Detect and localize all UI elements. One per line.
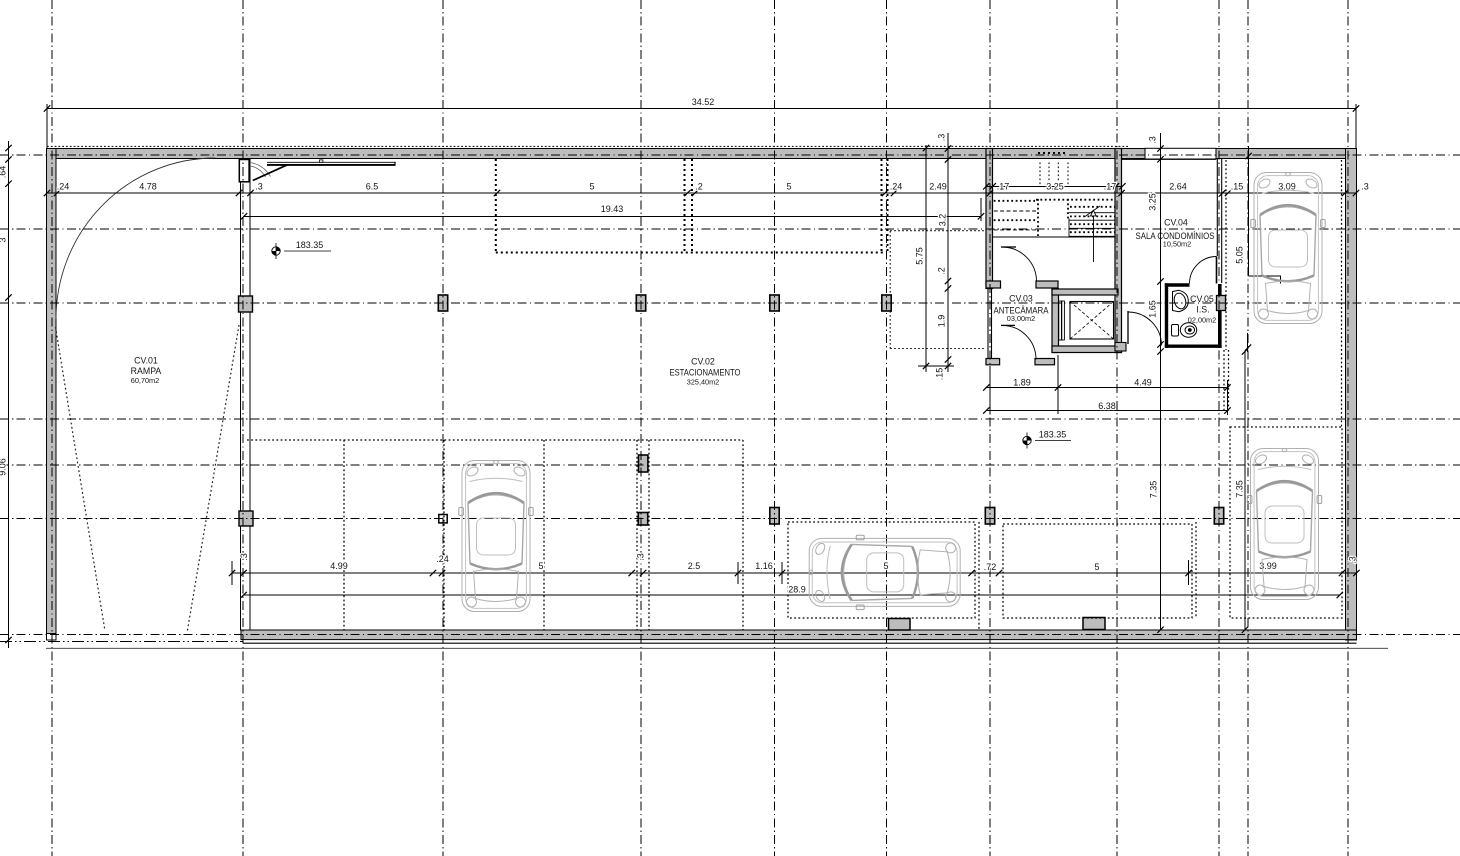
- svg-text:1.89: 1.89: [1013, 378, 1031, 388]
- svg-text:1.16: 1.16: [755, 561, 773, 571]
- svg-text:.15: .15: [935, 368, 945, 381]
- svg-text:5: 5: [786, 182, 791, 192]
- svg-text:4.99: 4.99: [330, 561, 348, 571]
- svg-text:CV.05: CV.05: [1190, 294, 1214, 304]
- svg-text:3.2: 3.2: [938, 214, 948, 227]
- svg-text:183.35: 183.35: [1039, 430, 1067, 440]
- svg-text:.3: .3: [255, 182, 263, 192]
- svg-text:5: 5: [1094, 562, 1099, 572]
- svg-text:7.35: 7.35: [1149, 481, 1159, 499]
- svg-text:.3: .3: [937, 134, 947, 142]
- svg-text:1.9: 1.9: [937, 315, 947, 328]
- svg-text:.17: .17: [997, 182, 1010, 192]
- svg-text:4.49: 4.49: [1134, 378, 1152, 388]
- svg-text:28.9: 28.9: [788, 585, 806, 595]
- svg-text:60,70m2: 60,70m2: [131, 376, 159, 385]
- svg-text:.2: .2: [695, 182, 703, 192]
- svg-text:7.35: 7.35: [1235, 480, 1245, 498]
- svg-text:03,00m2: 03,00m2: [1007, 314, 1035, 323]
- svg-text:.24: .24: [436, 554, 449, 564]
- svg-text:ESTACIONAMENTO: ESTACIONAMENTO: [670, 368, 741, 378]
- svg-text:.2: .2: [937, 267, 947, 275]
- svg-text:10,50m2: 10,50m2: [1163, 240, 1191, 249]
- svg-text:4.78: 4.78: [139, 182, 157, 192]
- svg-text:.3: .3: [1361, 182, 1369, 192]
- svg-text:.17: .17: [1104, 182, 1117, 192]
- svg-text:5: 5: [538, 561, 543, 571]
- svg-text:.24: .24: [890, 182, 903, 192]
- svg-text:3.25: 3.25: [1046, 182, 1064, 192]
- svg-text:5.75: 5.75: [915, 247, 925, 265]
- svg-text:3: 3: [0, 237, 8, 242]
- svg-text:5.05: 5.05: [1235, 246, 1245, 264]
- svg-text:.15: .15: [1231, 182, 1244, 192]
- svg-text:CV.03: CV.03: [1009, 294, 1033, 304]
- svg-text:.24: .24: [57, 182, 70, 192]
- svg-text:.3: .3: [636, 553, 646, 561]
- svg-text:19.43: 19.43: [601, 204, 624, 214]
- svg-text:RAMPA: RAMPA: [131, 366, 162, 376]
- svg-text:325,40m2: 325,40m2: [687, 377, 719, 386]
- svg-text:2.5: 2.5: [688, 561, 701, 571]
- svg-text:.3: .3: [1348, 556, 1358, 564]
- svg-text:.64: .64: [0, 166, 8, 179]
- svg-text:2.64: 2.64: [1169, 182, 1187, 192]
- svg-text:.3: .3: [239, 553, 249, 561]
- svg-text:CV.02: CV.02: [691, 357, 715, 367]
- svg-text:34.52: 34.52: [692, 97, 715, 107]
- svg-text:.72: .72: [984, 562, 997, 572]
- svg-text:02,00m2: 02,00m2: [1188, 316, 1216, 325]
- svg-text:1.65: 1.65: [1148, 300, 1158, 318]
- svg-text:183.35: 183.35: [296, 240, 324, 250]
- svg-text:CV.01: CV.01: [134, 356, 158, 366]
- svg-text:I.S.: I.S.: [1196, 305, 1209, 315]
- svg-text:6.5: 6.5: [366, 182, 379, 192]
- svg-text:5: 5: [589, 182, 594, 192]
- svg-text:5: 5: [883, 561, 888, 571]
- svg-text:CV.04: CV.04: [1164, 218, 1188, 228]
- svg-text:2.49: 2.49: [929, 182, 947, 192]
- svg-text:3.25: 3.25: [1148, 193, 1158, 211]
- svg-text:9.06: 9.06: [0, 458, 8, 476]
- svg-text:6.38: 6.38: [1098, 401, 1116, 411]
- svg-text:.3: .3: [1148, 136, 1158, 144]
